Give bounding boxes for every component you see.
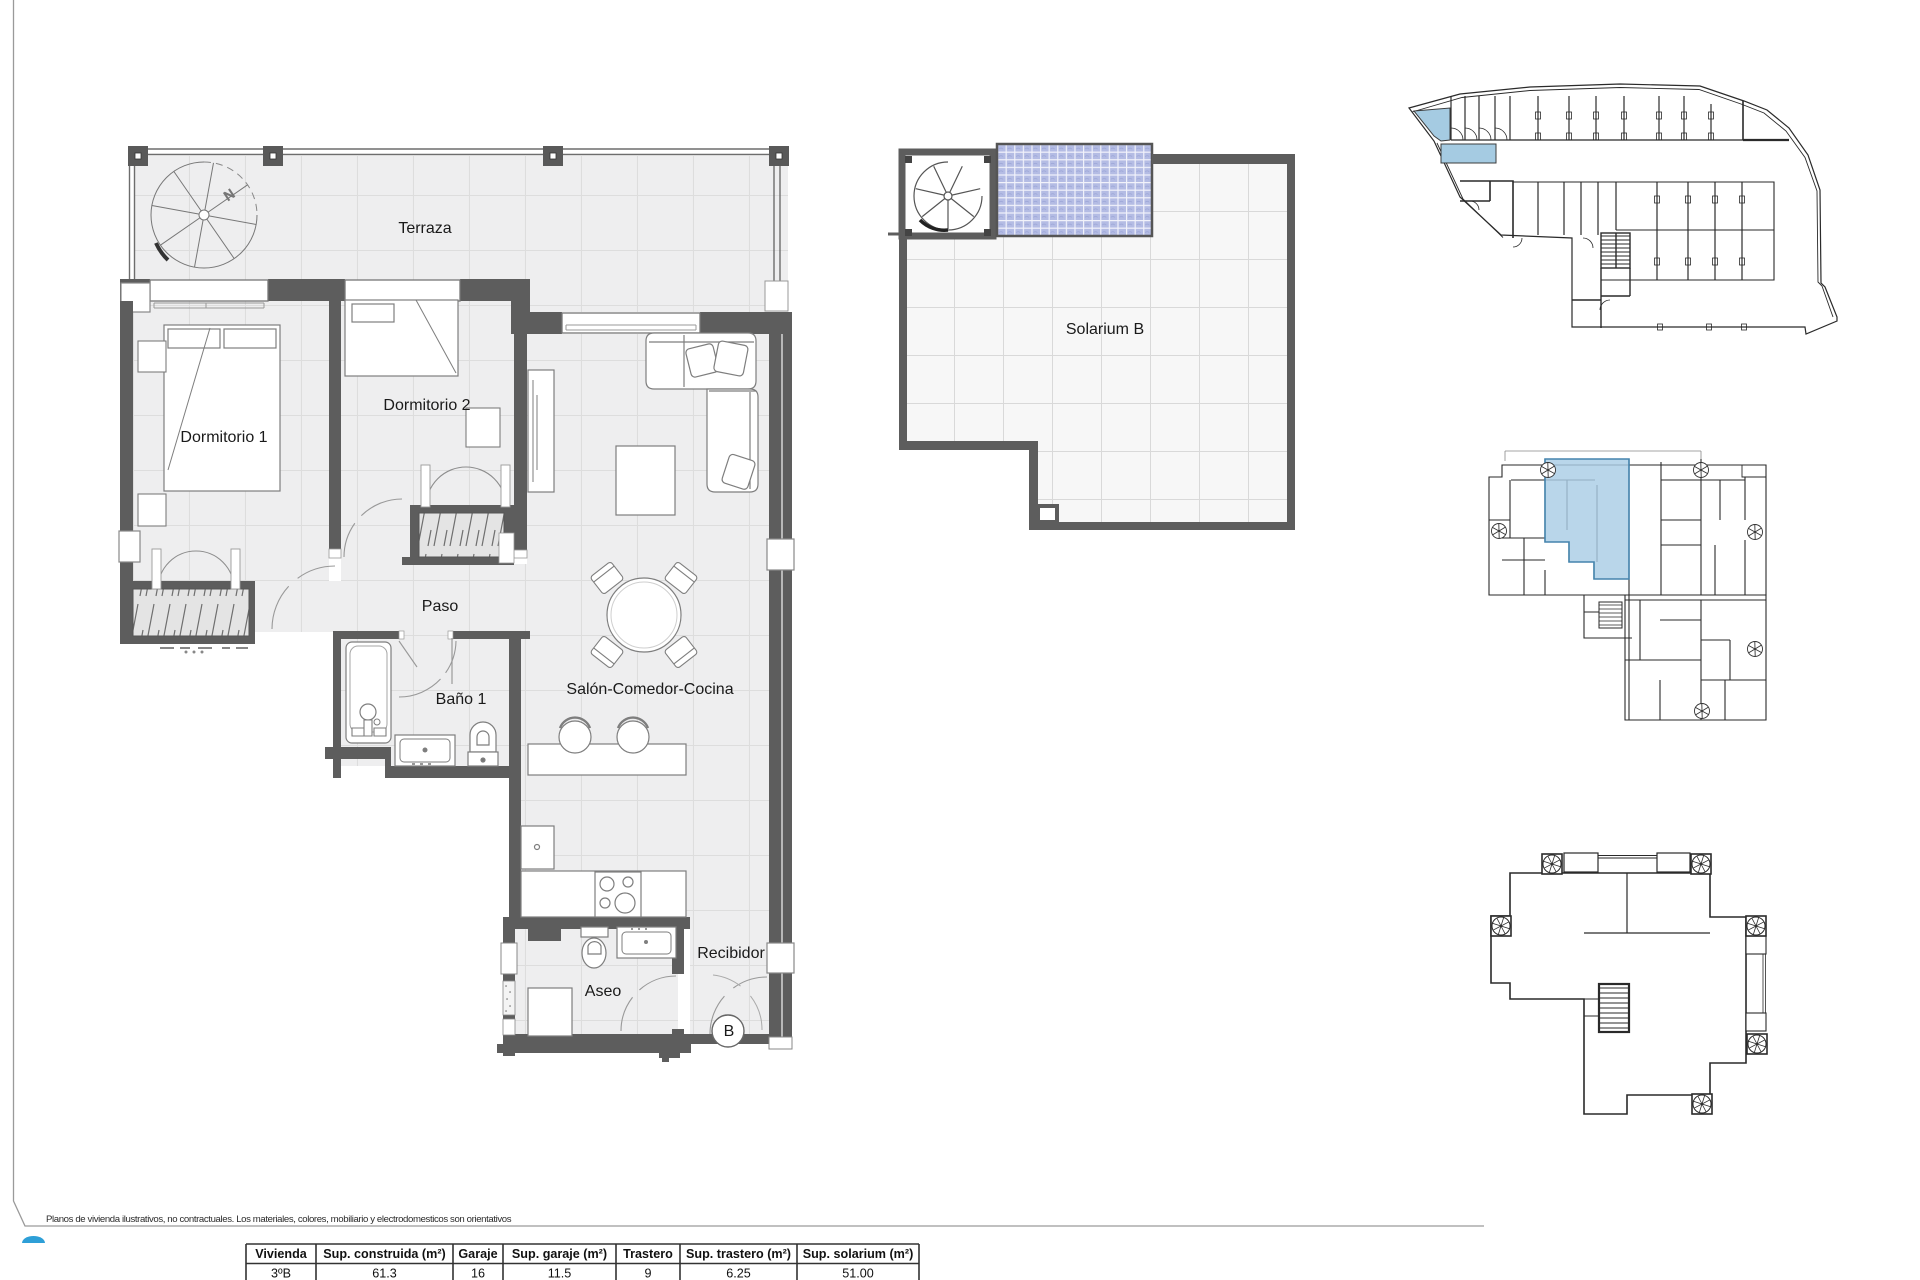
svg-text:Sup. garaje (m²): Sup. garaje (m²) [512, 1247, 607, 1261]
svg-text:Salón-Comedor-Cocina: Salón-Comedor-Cocina [566, 681, 733, 698]
svg-text:Paso: Paso [422, 598, 459, 615]
svg-text:Dormitorio 1: Dormitorio 1 [180, 429, 267, 446]
svg-text:Solarium B: Solarium B [1066, 321, 1144, 338]
svg-text:6.25: 6.25 [726, 1267, 751, 1280]
svg-text:B: B [724, 1023, 735, 1040]
svg-text:51.00: 51.00 [842, 1267, 874, 1280]
svg-text:Vivienda: Vivienda [255, 1247, 308, 1261]
svg-text:Aseo: Aseo [585, 983, 622, 1000]
svg-text:Sup. solarium (m²): Sup. solarium (m²) [803, 1247, 914, 1261]
svg-text:3ºB: 3ºB [271, 1267, 291, 1280]
svg-text:Sup. trastero (m²): Sup. trastero (m²) [686, 1247, 791, 1261]
svg-text:Planos de vivienda ilustrativo: Planos de vivienda ilustrativos, no cont… [46, 1214, 512, 1225]
svg-text:Terraza: Terraza [398, 220, 451, 237]
svg-text:Trastero: Trastero [623, 1247, 673, 1261]
svg-text:9: 9 [644, 1267, 651, 1280]
svg-text:Dormitorio 2: Dormitorio 2 [383, 397, 470, 414]
svg-text:Sup. construida (m²): Sup. construida (m²) [323, 1247, 445, 1261]
svg-text:11.5: 11.5 [548, 1267, 572, 1280]
svg-text:Garaje: Garaje [458, 1247, 497, 1261]
svg-text:16: 16 [471, 1267, 485, 1280]
svg-text:Recibidor: Recibidor [697, 945, 765, 962]
svg-text:61.3: 61.3 [372, 1267, 397, 1280]
svg-text:Baño 1: Baño 1 [436, 691, 487, 708]
